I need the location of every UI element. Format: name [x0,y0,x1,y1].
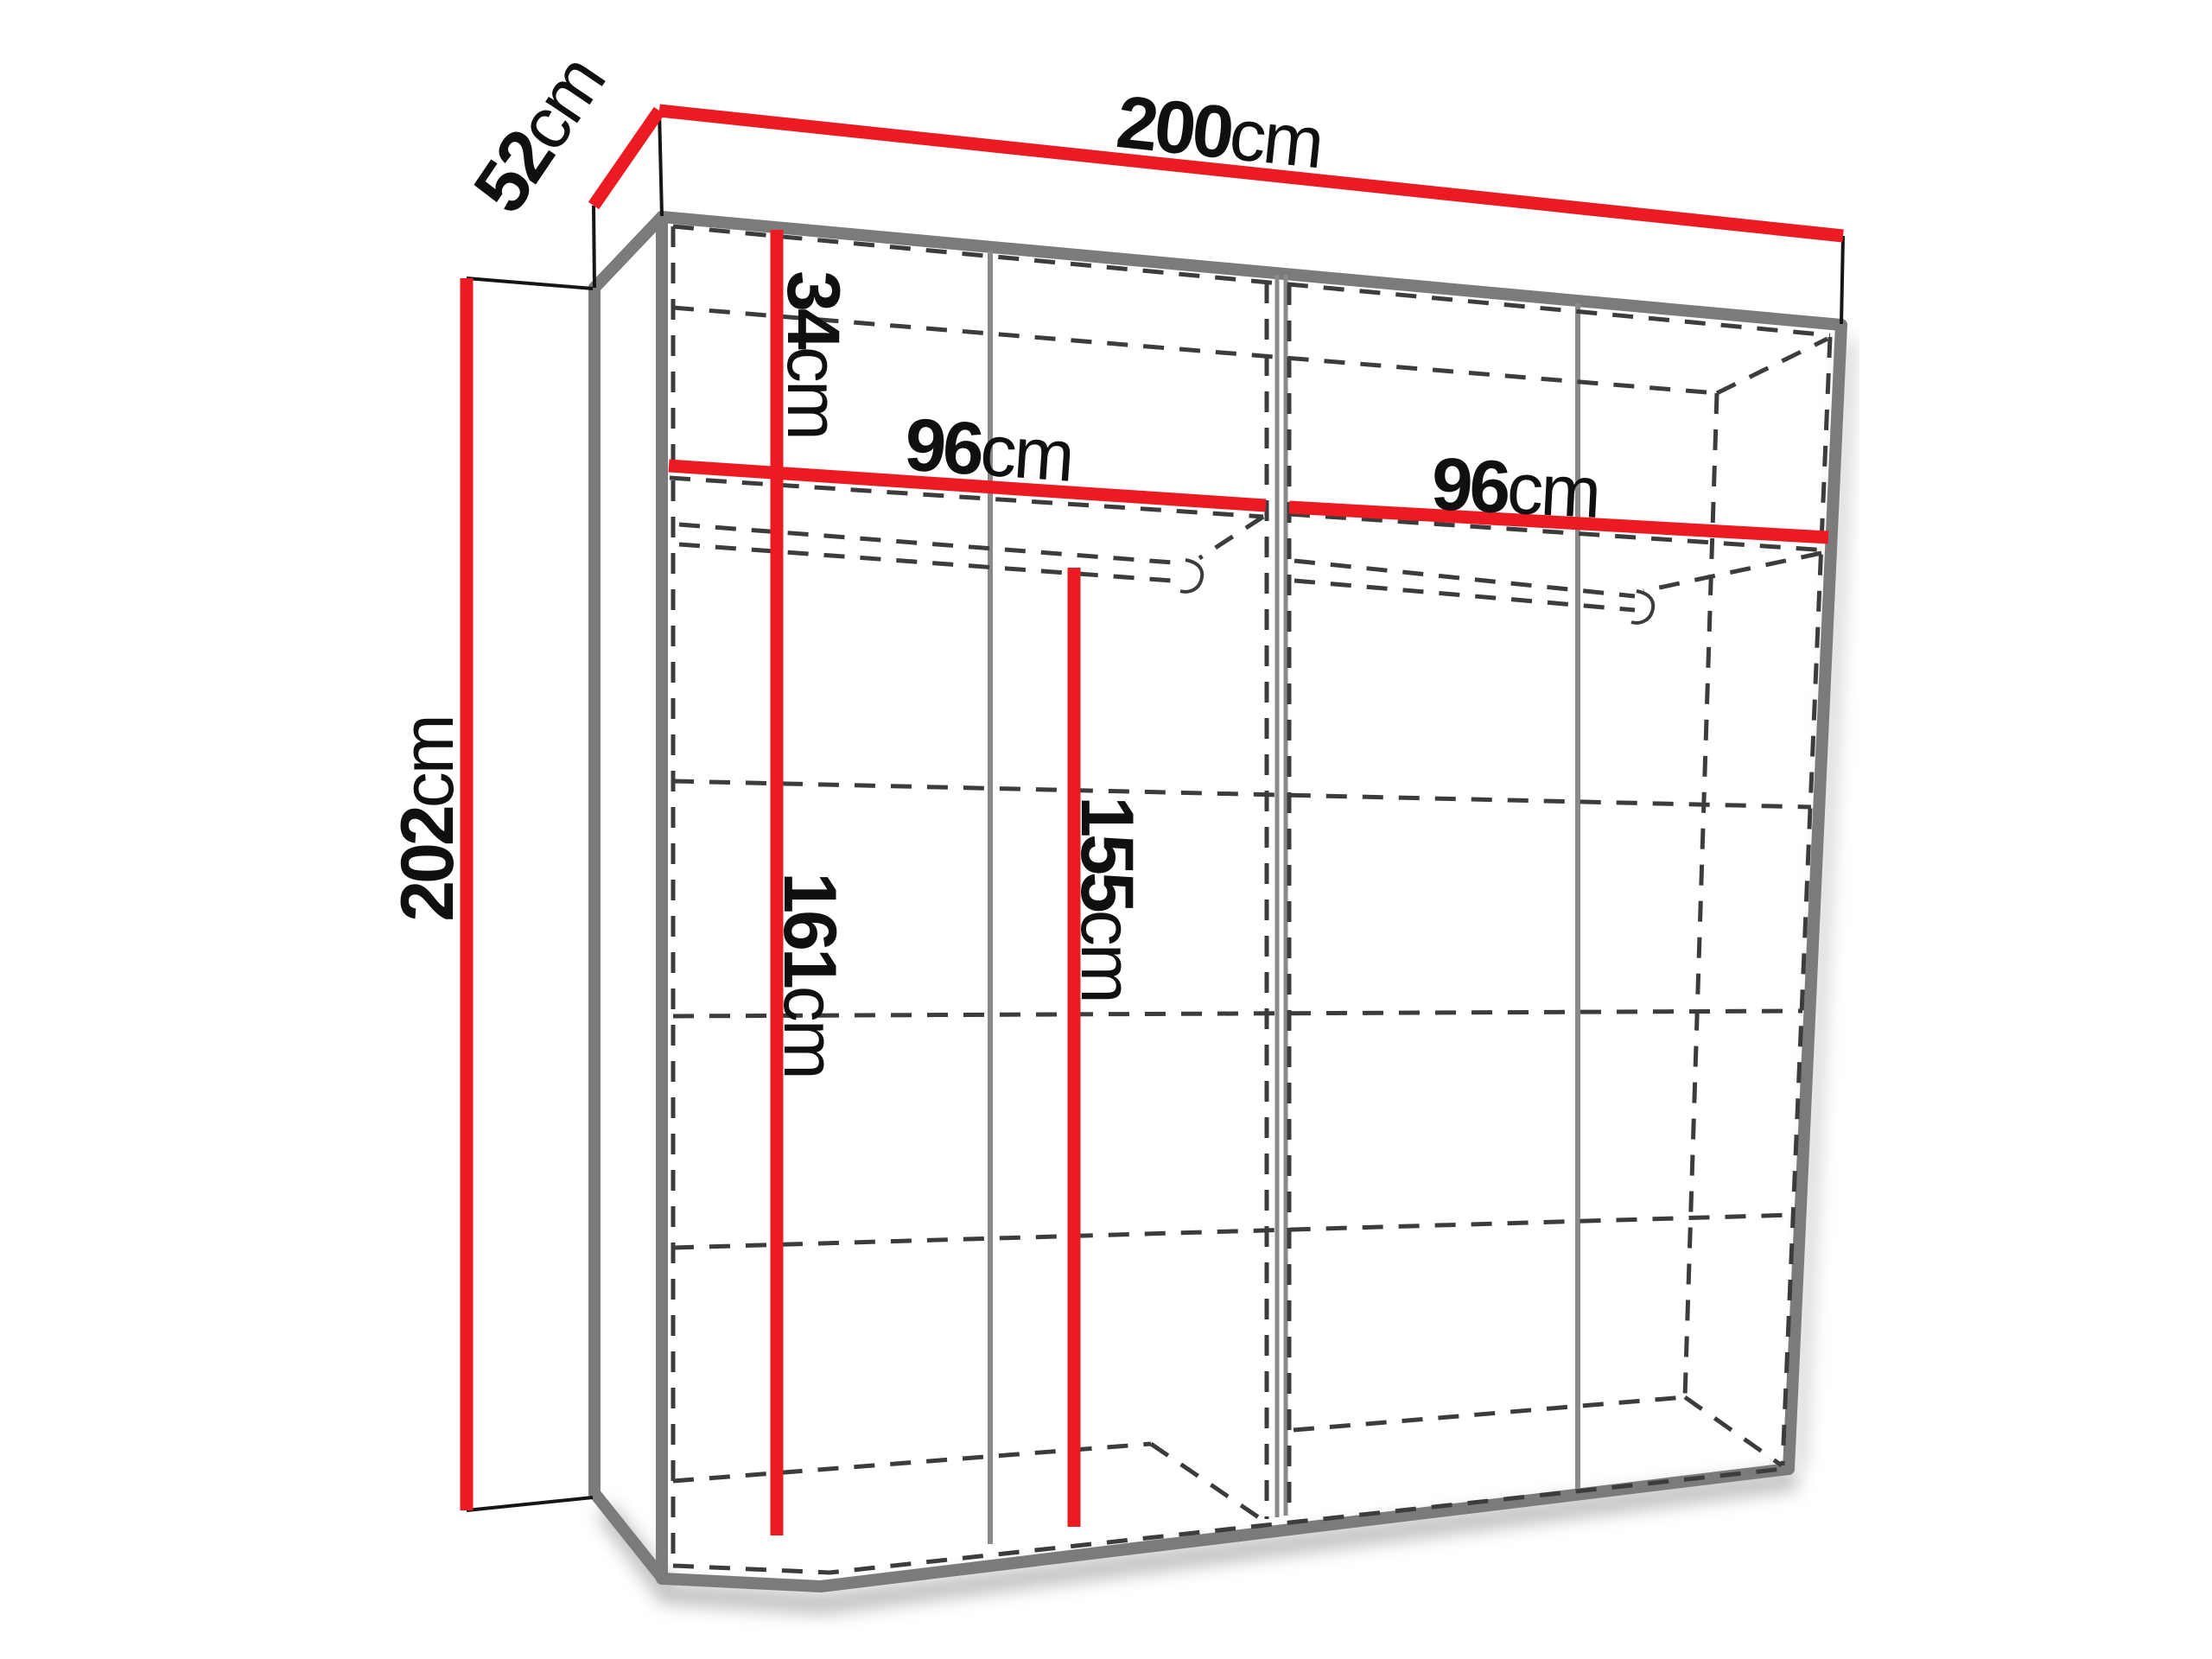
hanging-rails [679,524,1653,623]
shelf-line-3 [673,1215,1794,1248]
width-left-tick [659,111,662,216]
right-section-height-unit: cm [1066,910,1147,1001]
right-front-edge [1789,325,1841,1469]
left-section-width-unit: cm [978,410,1075,497]
left-rail-front-line [679,524,1184,563]
height-total-value: 202 [386,807,469,922]
left-section-height-label: 161cm [768,872,851,1077]
left-rail-hook-icon [1180,560,1202,592]
left-shelf-rear-diagonal [1199,517,1263,558]
right-section-width-label: 96cm [1429,442,1600,534]
top-rear-right-corner-diagonal [1717,339,1827,393]
right-rail-front-line [1294,561,1635,596]
depth-52-line [594,111,659,206]
right-section-width-value: 96 [1429,442,1510,530]
width-right-tick [1841,236,1843,324]
shelf-line-1 [673,781,1811,807]
right-rear-bottom-diagonal [1685,1397,1782,1465]
right-rail-rear-line [1294,581,1635,610]
height-bottom-tick [467,1497,593,1510]
right-rear-bottom-line [1294,1397,1685,1430]
width-total-value: 200 [1113,80,1236,175]
top-section-height-label: 34cm [772,270,855,438]
height-top-tick [467,278,593,289]
right-shelf-rear-diagonal [1643,553,1821,591]
left-section-width-value: 96 [902,403,984,491]
height-total-label: 202cm [386,716,469,921]
top-section-height-unit: cm [772,346,854,438]
left-section-height-unit: cm [769,986,850,1077]
left-side-bottom-edge [594,1493,663,1579]
wardrobe-dimension-diagram: 200cm 52cm 202cm 34cm 96cm 96cm 161cm 15… [0,0,2212,1659]
right-section-height-label: 155cm [1065,796,1148,1001]
width-total-label: 200cm [1113,80,1325,184]
right-section-width-unit: cm [1505,448,1601,533]
top-section-height-value: 34 [772,270,855,350]
depth-front-tick [594,206,594,288]
width-total-unit: cm [1226,93,1325,184]
left-side-top-edge [594,217,662,288]
left-rear-bottom-diagonal [1151,1444,1260,1518]
diagram-canvas: 200cm 52cm 202cm 34cm 96cm 96cm 161cm 15… [0,0,2212,1659]
side-shadow [1799,339,1849,1469]
right-section-height-value: 155 [1065,796,1148,912]
left-rail-rear-line [679,544,1184,582]
left-section-width-label: 96cm [902,403,1075,497]
height-total-unit: cm [387,716,468,808]
left-section-height-value: 161 [768,872,851,988]
